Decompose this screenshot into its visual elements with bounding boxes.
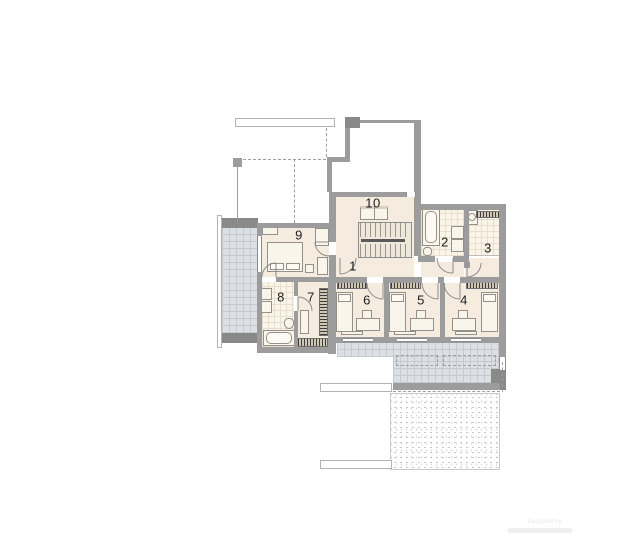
- wardrobe-cabinet: [315, 228, 329, 246]
- room-label-7: 7: [307, 290, 315, 305]
- desk: [452, 318, 476, 331]
- desk: [410, 318, 434, 331]
- window: [343, 338, 373, 342]
- skylight-outline: [443, 355, 496, 366]
- wall: [257, 347, 335, 353]
- wall: [499, 204, 506, 357]
- wall: [328, 282, 336, 354]
- wall: [464, 262, 470, 268]
- closet-shelves-room7: [319, 288, 328, 336]
- dashed-line: [502, 362, 503, 392]
- room-label-10: 10: [365, 196, 380, 211]
- balcony-door: [257, 236, 262, 272]
- room-label-4: 4: [460, 293, 468, 308]
- wall: [327, 162, 332, 192]
- dashed-line: [326, 128, 327, 157]
- watermark-text: Designed by: [528, 519, 561, 525]
- sink: [451, 226, 464, 239]
- shelf: [455, 331, 477, 335]
- watermark-blur-line: [508, 528, 572, 533]
- roof-edge-bar: [320, 383, 392, 392]
- pillow: [286, 263, 300, 270]
- balcony-railing: [217, 215, 222, 348]
- washing-machine-door: [468, 213, 476, 221]
- stairs-lower-flight: [360, 244, 410, 257]
- window: [451, 338, 481, 342]
- dashed-line: [243, 159, 326, 160]
- wall: [276, 277, 335, 282]
- wall: [460, 277, 500, 283]
- closet-bench: [300, 310, 309, 334]
- pillow: [483, 294, 496, 302]
- room-label-5: 5: [417, 293, 425, 308]
- closet-shelves-bottom: [297, 338, 328, 347]
- roof-edge-bar: [235, 118, 335, 127]
- wall: [329, 192, 336, 242]
- column-line: [237, 167, 238, 223]
- room-label-9: 9: [295, 228, 303, 243]
- pillow: [338, 294, 351, 302]
- room-label-2: 2: [441, 235, 449, 250]
- dashed-line: [294, 159, 295, 223]
- shelf: [394, 331, 416, 335]
- cabinet: [317, 257, 328, 275]
- dashed-line: [393, 391, 500, 392]
- wall: [393, 383, 500, 390]
- toilet: [423, 247, 432, 256]
- roof-edge-bar: [320, 460, 392, 469]
- wall: [384, 283, 389, 337]
- skylight-outline: [396, 355, 438, 366]
- wall: [464, 210, 469, 262]
- pillow: [391, 294, 404, 302]
- wall: [294, 282, 298, 296]
- alcove-floor: [465, 258, 499, 277]
- pillow: [270, 263, 284, 270]
- desk: [356, 318, 380, 331]
- floor-plan: 1 2 3 4 5 6 7 8 9 10 Designed by: [0, 0, 638, 556]
- window: [397, 338, 427, 342]
- wall: [414, 120, 421, 256]
- wall: [440, 283, 445, 337]
- bathtub-basin: [425, 211, 437, 243]
- toilet: [284, 318, 294, 329]
- stairs-handrail: [361, 239, 405, 242]
- wall: [418, 256, 435, 262]
- room-label-6: 6: [363, 293, 371, 308]
- sink: [451, 239, 464, 252]
- column: [233, 158, 242, 167]
- balcony-tiles: [222, 228, 257, 333]
- wall: [222, 333, 258, 343]
- stairs-upper-flight: [360, 223, 410, 237]
- nightstand: [305, 264, 314, 273]
- wall: [257, 277, 262, 282]
- wall: [294, 311, 298, 347]
- wall: [345, 117, 360, 128]
- gravel-roof-area: [390, 393, 500, 470]
- wall: [420, 204, 505, 210]
- corridor-floor: [421, 262, 464, 277]
- wall: [222, 218, 258, 228]
- shelf: [341, 331, 363, 335]
- wall: [335, 277, 367, 283]
- room-label-3: 3: [484, 241, 492, 256]
- room-label-1: 1: [349, 259, 357, 274]
- window: [406, 192, 416, 197]
- wall: [360, 120, 414, 123]
- room-label-8: 8: [277, 290, 285, 305]
- bathtub-basin: [266, 332, 292, 344]
